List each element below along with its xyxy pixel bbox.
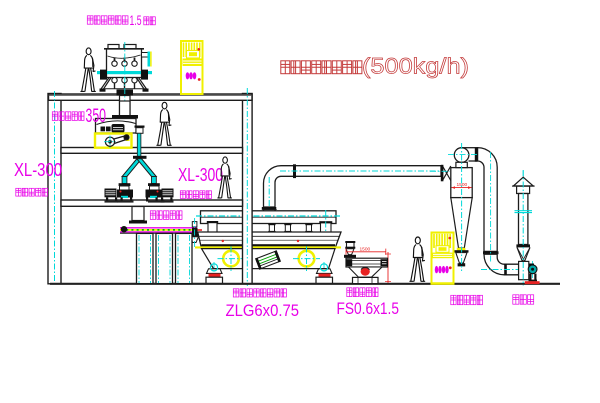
svg-text:XL-300: XL-300 bbox=[178, 165, 223, 185]
svg-text:ZLG6x0.75: ZLG6x0.75 bbox=[226, 301, 300, 320]
svg-text:1.5: 1.5 bbox=[130, 12, 142, 28]
svg-text:FS0.6x1.5: FS0.6x1.5 bbox=[337, 300, 400, 318]
svg-text:(500kg/h): (500kg/h) bbox=[362, 54, 469, 79]
svg-text:350: 350 bbox=[86, 106, 107, 127]
svg-text:XL-300: XL-300 bbox=[14, 159, 62, 180]
